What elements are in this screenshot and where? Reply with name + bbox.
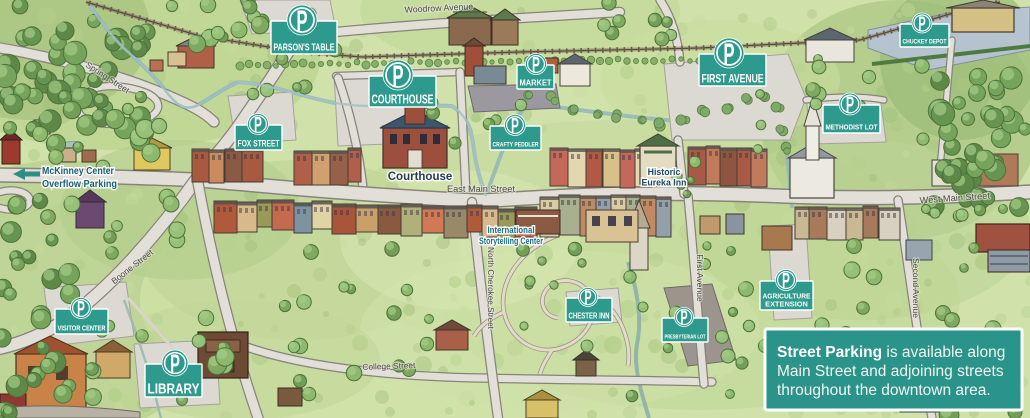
svg-text:P: P [254,114,262,137]
svg-text:P: P [782,270,790,293]
svg-text:P: P [584,288,591,309]
svg-text:PRESBYTERIAN LOT: PRESBYTERIAN LOT [665,335,706,341]
svg-text:Overflow Parking: Overflow Parking [42,179,117,190]
svg-text:FOX STREET: FOX STREET [238,139,280,149]
svg-text:P: P [532,54,540,77]
svg-text:CRAFTY PEDDLER: CRAFTY PEDDLER [493,142,539,149]
svg-text:MARKET: MARKET [520,79,552,88]
svg-text:North Cherokee Street: North Cherokee Street [486,247,495,330]
svg-text:Street Parking is available al: Street Parking is available along [777,344,1005,361]
svg-text:P: P [918,13,926,35]
svg-text:P: P [392,60,403,93]
svg-text:College Street: College Street [362,360,416,372]
svg-text:FIRST AVENUE: FIRST AVENUE [702,74,764,86]
svg-text:P: P [511,115,519,138]
svg-text:First Avenue: First Avenue [695,254,705,302]
svg-text:Eureka Inn: Eureka Inn [642,178,687,188]
svg-text:International: International [488,225,535,235]
svg-text:P: P [723,38,734,71]
svg-text:COURTHOUSE: COURTHOUSE [372,92,434,107]
svg-text:LIBRARY: LIBRARY [148,382,200,398]
svg-text:P: P [170,349,180,379]
svg-text:Main Street and adjoining stre: Main Street and adjoining streets [777,363,1004,380]
svg-text:P: P [680,308,687,329]
svg-text:Courthouse: Courthouse [388,171,453,183]
svg-text:P: P [296,5,307,38]
svg-text:CHUCKEY DEPOT: CHUCKEY DEPOT [903,39,948,46]
svg-text:P: P [77,298,85,321]
svg-text:METHODIST LOT: METHODIST LOT [826,123,878,132]
svg-text:Historic: Historic [648,167,681,177]
svg-text:McKinney Center: McKinney Center [42,166,114,177]
svg-text:PARSON'S TABLE: PARSON'S TABLE [274,43,335,54]
svg-text:Storytelling Center: Storytelling Center [479,236,543,246]
svg-text:VISITOR CENTER: VISITOR CENTER [58,324,107,333]
svg-text:East Main Street: East Main Street [447,184,515,194]
svg-text:P: P [846,92,854,117]
svg-text:throughout the downtown area.: throughout the downtown area. [777,382,991,399]
svg-text:EXTENSION: EXTENSION [765,300,808,309]
svg-text:Second Avenue: Second Avenue [911,258,921,318]
svg-text:CHESTER INN: CHESTER INN [569,311,610,321]
